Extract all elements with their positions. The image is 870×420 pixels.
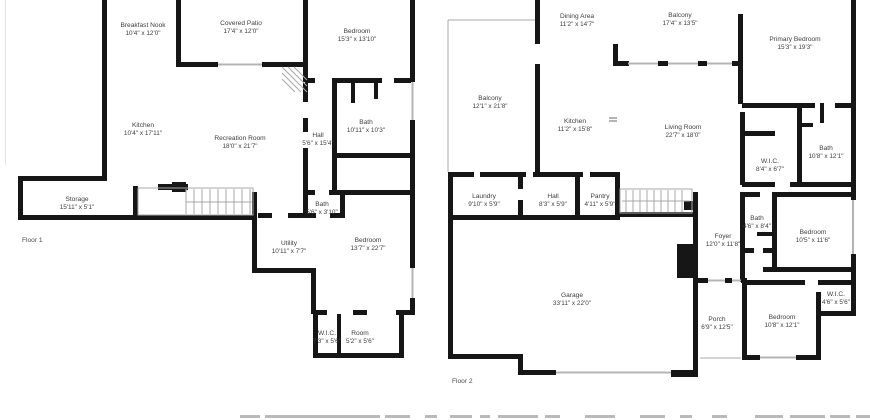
f1-room-name: Room xyxy=(351,330,369,337)
f1-hall-dims: 5'6" x 15'4" xyxy=(302,140,334,147)
f2-bedroom-bottom-dims: 10'8" x 12'1" xyxy=(764,322,799,329)
f2-laundry-name: Laundry xyxy=(472,193,497,200)
f2-foyer-dims: 12'0" x 11'8" xyxy=(706,241,741,248)
f1-bath-upper-dims: 10'11" x 10'3" xyxy=(347,127,385,134)
f2-pantry-name: Pantry xyxy=(590,193,610,200)
f2-hall-dims: 8'3" x 5'9" xyxy=(539,201,567,208)
f2-bath-primary-name: Bath xyxy=(819,145,833,152)
f2-balcony-left-dims: 12'1" x 21'8" xyxy=(472,103,507,110)
f1-storage-name: Storage xyxy=(65,196,88,203)
f2-pantry-dims: 4'11" x 5'9" xyxy=(584,201,615,208)
f2-balcony-top-name: Balcony xyxy=(668,12,692,19)
cropped-next-image-strip xyxy=(240,415,870,418)
floor2-stairs xyxy=(620,189,692,213)
f2-wic-primary-dims: 8'4" x 6'7" xyxy=(756,166,784,173)
f2-dining-area-name: Dining Area xyxy=(560,13,594,20)
f2-garage-name: Garage xyxy=(561,292,583,299)
f2-balcony-top-dims: 17'4" x 13'5" xyxy=(662,20,697,27)
f1-covered-patio-dims: 17'4" x 12'0" xyxy=(223,28,258,35)
f2-wic-bottom-name: W.I.C. xyxy=(827,291,845,298)
f2-primary-bedroom-dims: 15'3" x 19'3" xyxy=(777,44,812,51)
f2-bath-mid-name: Bath xyxy=(750,215,764,222)
f2-bath-mid-dims: 4'6" x 8'4" xyxy=(743,223,771,230)
image-edge-line xyxy=(5,0,6,165)
floorplan-canvas: Breakfast Nook 10'4" x 12'0" Covered Pat… xyxy=(0,0,870,420)
f1-bath-upper-name: Bath xyxy=(359,119,373,126)
f2-kitchen-name: Kitchen xyxy=(564,118,586,125)
floor1-plan: Breakfast Nook 10'4" x 12'0" Covered Pat… xyxy=(18,0,415,358)
f1-wic-name: W.I.C. xyxy=(318,330,336,337)
f2-kitchen-dims: 11'2" x 15'8" xyxy=(558,126,593,133)
floor2-plan: Dining Area 11'2" x 14'7" Balcony 17'4" … xyxy=(448,0,856,385)
f2-porch-dims: 6'9" x 12'5" xyxy=(701,324,733,331)
f2-bath-primary-dims: 10'8" x 12'1" xyxy=(808,153,843,160)
f2-balcony-left-name: Balcony xyxy=(478,95,502,102)
f1-bedroom-lower-dims: 13'7" x 22'7" xyxy=(350,245,385,252)
f2-bedroom-bottom-name: Bedroom xyxy=(769,314,796,321)
f2-garage-dims: 33'11" x 22'0" xyxy=(553,300,591,307)
f2-bedroom-mid-name: Bedroom xyxy=(800,229,827,236)
f1-breakfast-nook-name: Breakfast Nook xyxy=(120,22,166,29)
f1-wic-dims: 7'3" x 5'6" xyxy=(313,338,341,345)
f2-laundry-dims: 9'10" x 5'9" xyxy=(468,201,500,208)
f2-living-room-dims: 22'7" x 18'0" xyxy=(665,132,700,139)
f1-covered-patio-name: Covered Patio xyxy=(220,20,262,27)
f1-breakfast-nook-dims: 10'4" x 12'0" xyxy=(125,30,160,37)
f2-living-room-name: Living Room xyxy=(665,124,702,131)
floor2-label: Floor 2 xyxy=(452,378,473,385)
floorplan-image: Breakfast Nook 10'4" x 12'0" Covered Pat… xyxy=(0,0,870,420)
f1-room-dims: 5'2" x 5'6" xyxy=(346,338,374,345)
f1-storage-dims: 15'11" x 5'1" xyxy=(60,204,95,211)
f1-bedroom-lower-name: Bedroom xyxy=(355,237,382,244)
f1-utility-dims: 10'11" x 7'7" xyxy=(272,248,307,255)
f2-primary-bedroom-name: Primary Bedroom xyxy=(769,36,821,43)
f2-hall-name: Hall xyxy=(547,193,559,200)
floor1-walls xyxy=(18,0,415,358)
f1-kitchen-dims: 10'4" x 17'11" xyxy=(124,130,162,137)
f1-kitchen-name: Kitchen xyxy=(132,122,154,129)
f1-bath-small-name: Bath xyxy=(315,201,329,208)
floor1-windows xyxy=(218,65,413,299)
f2-porch-name: Porch xyxy=(708,316,726,323)
f1-recreation-room-name: Recreation Room xyxy=(214,135,266,142)
f2-dining-area-dims: 11'2" x 14'7" xyxy=(560,21,595,28)
f2-bedroom-mid-dims: 10'5" x 11'6" xyxy=(796,237,831,244)
f1-bedroom-top-dims: 15'3" x 13'10" xyxy=(338,36,377,43)
f2-wic-primary-name: W.I.C. xyxy=(761,158,779,165)
f2-foyer-name: Foyer xyxy=(715,233,733,240)
f1-utility-name: Utility xyxy=(281,240,298,247)
floor1-label: Floor 1 xyxy=(22,237,43,244)
f1-hall-name: Hall xyxy=(312,132,324,139)
f1-bedroom-top-name: Bedroom xyxy=(344,28,371,35)
floor1-stairs xyxy=(138,188,253,215)
f1-recreation-room-dims: 18'0" x 21'7" xyxy=(222,143,257,150)
f1-bath-small-dims: 5'6" x 3'10" xyxy=(306,209,338,216)
f2-wic-bottom-dims: 4'6" x 5'6" xyxy=(822,299,850,306)
